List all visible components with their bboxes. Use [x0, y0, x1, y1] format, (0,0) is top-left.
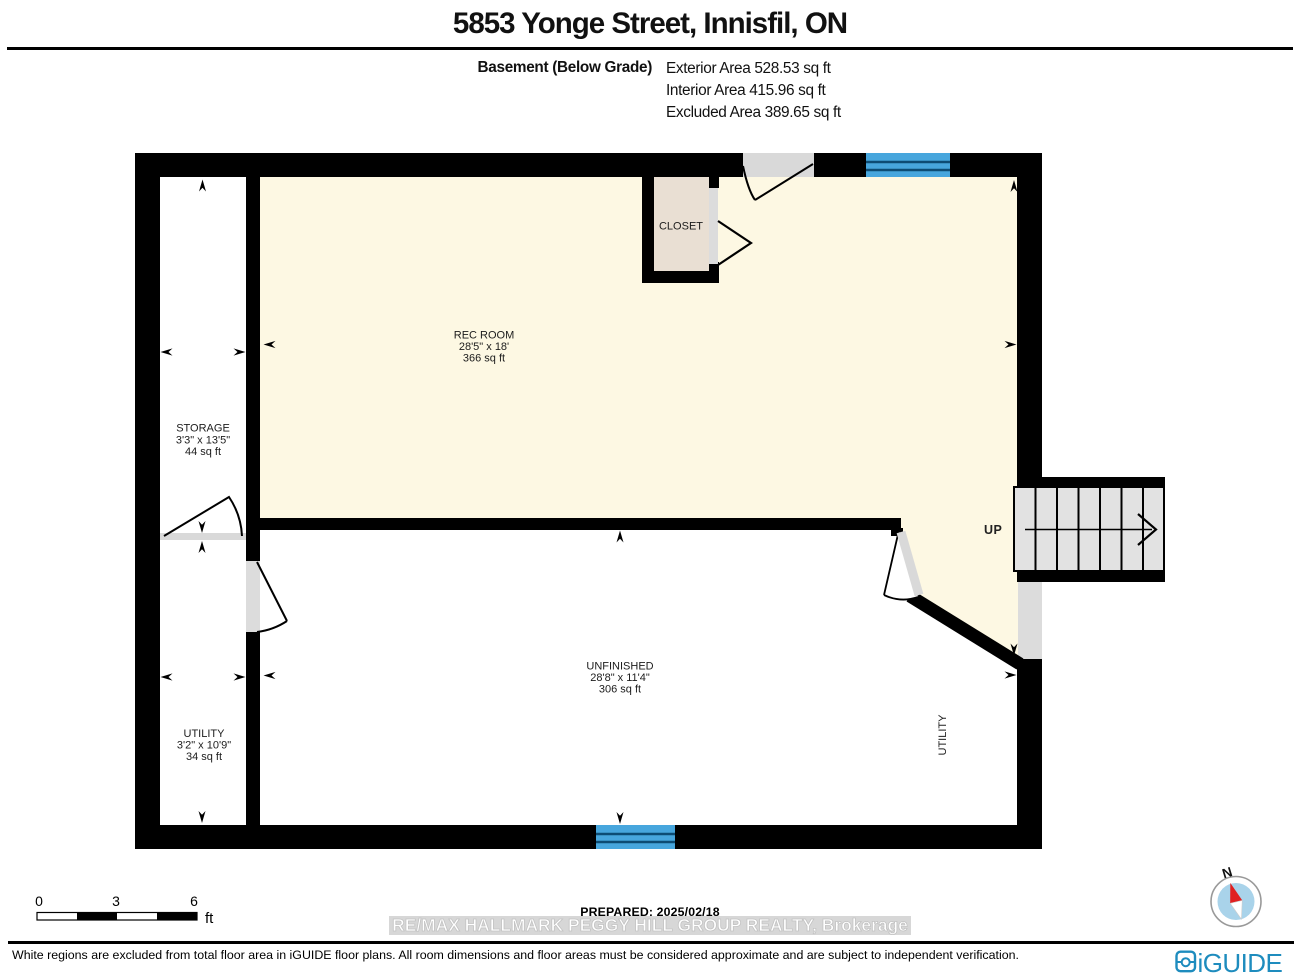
svg-text:N: N [1220, 864, 1234, 881]
svg-text:REC ROOM: REC ROOM [454, 330, 515, 342]
svg-text:28'5" x 18': 28'5" x 18' [459, 341, 509, 353]
svg-text:28'8" x 11'4": 28'8" x 11'4" [590, 672, 650, 684]
svg-text:UNFINISHED: UNFINISHED [586, 661, 653, 673]
svg-text:UP: UP [984, 523, 1002, 537]
svg-text:3'3" x 13'5": 3'3" x 13'5" [176, 434, 230, 446]
svg-text:306 sq ft: 306 sq ft [599, 684, 641, 696]
svg-text:iGUIDE: iGUIDE [1198, 948, 1283, 973]
svg-text:UTILITY: UTILITY [937, 714, 949, 756]
svg-text:366 sq ft: 366 sq ft [463, 353, 505, 365]
svg-text:3'2" x 10'9": 3'2" x 10'9" [177, 740, 231, 752]
svg-text:44 sq ft: 44 sq ft [185, 446, 221, 458]
svg-text:CLOSET: CLOSET [659, 221, 703, 233]
svg-text:34 sq ft: 34 sq ft [186, 751, 222, 763]
svg-text:STORAGE: STORAGE [176, 423, 230, 435]
svg-text:UTILITY: UTILITY [184, 728, 226, 740]
